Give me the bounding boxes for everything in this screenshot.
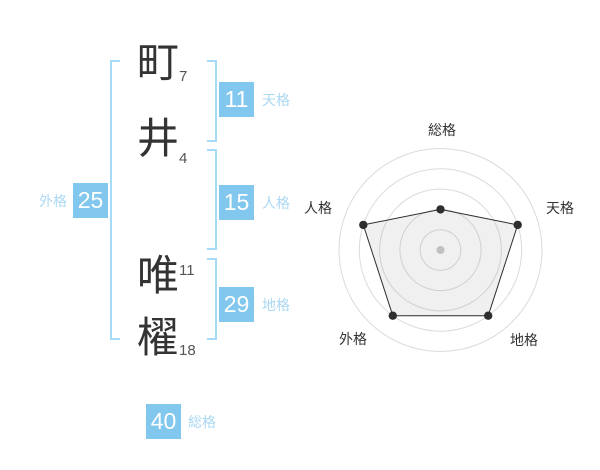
tenkaku-value-badge: 11 [219,82,254,117]
fortune-radar-chart: 総格天格地格外格人格 [290,105,590,370]
radar-axis-label-4: 外格 [339,332,367,348]
soukaku-label: 総格 [188,415,216,429]
name-character-3: 唯 [133,255,183,297]
chikaku-bracket [207,258,217,340]
stroke-count-3: 11 [179,263,195,278]
radar-axis-label-5: 人格 [304,201,332,217]
gaikaku-label: 外格 [39,194,67,208]
chikaku-value-badge: 29 [219,287,254,322]
radar-axis-label-3: 地格 [510,333,538,349]
stroke-count-1: 7 [179,69,187,84]
radar-axis-label-1: 総格 [428,123,456,139]
soukaku-value-badge: 40 [146,404,181,439]
name-character-2: 井 [133,118,183,160]
tenkaku-label: 天格 [262,93,290,107]
chikaku-label: 地格 [262,298,290,312]
name-character-1: 町 [133,42,183,84]
name-character-4: 櫂 [133,317,183,359]
jinkaku-label: 人格 [262,196,290,210]
stroke-count-2: 4 [179,151,187,166]
jinkaku-bracket [207,149,217,250]
gaikaku-value-badge: 25 [73,183,108,218]
stroke-count-4: 18 [179,343,196,358]
gaikaku-bracket [110,60,120,340]
jinkaku-value-badge: 15 [219,185,254,220]
tenkaku-bracket [207,60,217,142]
radar-axis-label-2: 天格 [546,201,574,217]
name-fortune-page: 町 井 唯 櫂 7 4 11 18 11 天格 15 人格 29 地格 外格 2… [0,0,600,470]
